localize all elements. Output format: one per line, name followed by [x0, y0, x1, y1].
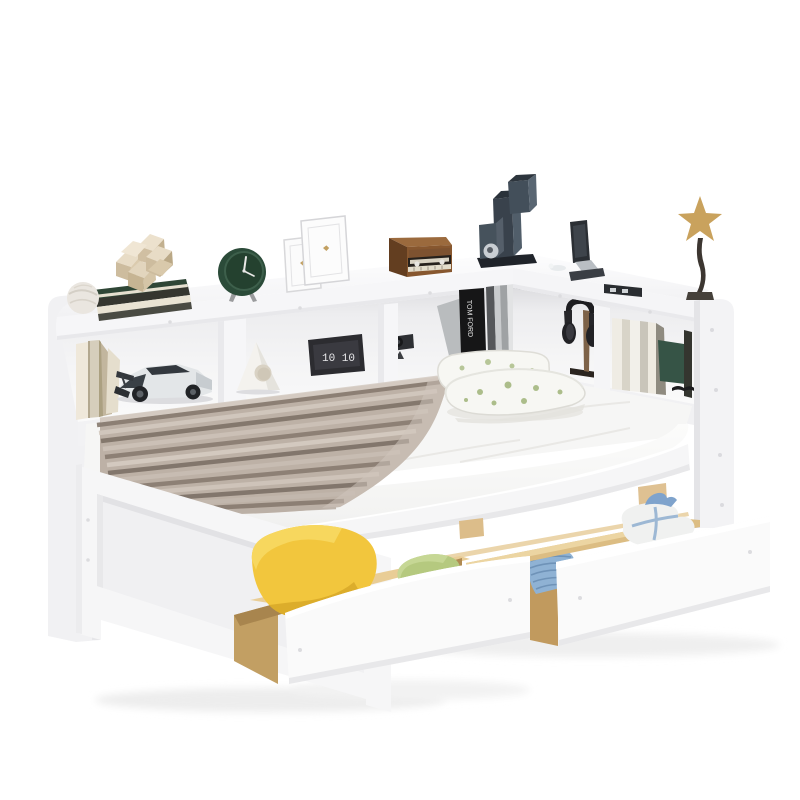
svg-text:10 10: 10 10: [322, 353, 355, 365]
svg-text:TOM FORD: TOM FORD: [465, 300, 473, 337]
